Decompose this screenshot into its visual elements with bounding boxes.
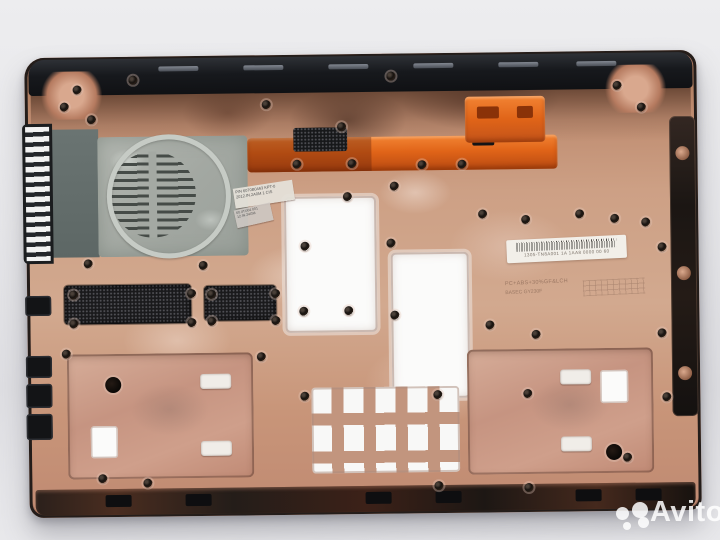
screw-hole <box>292 160 301 169</box>
screw-hole <box>613 81 622 90</box>
screw-hole <box>84 259 93 268</box>
heatsink-vent <box>22 124 54 264</box>
side-port-opening <box>26 384 52 408</box>
metal-clip <box>200 374 231 389</box>
screw-hole <box>271 316 280 325</box>
avito-logo-icon <box>616 507 629 520</box>
right-edge-channel <box>669 116 699 416</box>
screw-hole <box>300 392 309 401</box>
screw-hole <box>386 72 395 81</box>
product-photo: P/N 6070B0463 KPT-0 2012.IN.2A0M 1 CIS 6… <box>0 0 720 540</box>
screw-hole <box>199 261 208 270</box>
rear-slot <box>498 62 538 67</box>
screw-hole <box>523 389 532 398</box>
screw-hole <box>300 242 309 251</box>
screw-hole <box>658 328 667 337</box>
screw-hole <box>390 182 399 191</box>
side-port-opening <box>27 414 53 440</box>
screw-hole <box>143 479 152 488</box>
metal-clip <box>201 441 232 456</box>
screw-hole <box>347 159 356 168</box>
screw-hole <box>478 209 487 218</box>
avito-logo-icon <box>638 517 649 528</box>
screw-hole <box>271 289 280 298</box>
screw-boss <box>678 366 692 380</box>
screw-hole <box>299 307 308 316</box>
latch-block <box>366 492 392 504</box>
laptop-bottom-case: P/N 6070B0463 KPT-0 2012.IN.2A0M 1 CIS 6… <box>24 50 702 518</box>
screw-boss-hole <box>606 444 622 460</box>
screw-hole <box>524 483 533 492</box>
screw-hole <box>98 474 107 483</box>
screw-hole <box>417 160 426 169</box>
screw-hole <box>433 390 442 399</box>
avito-watermark: Avito <box>612 496 720 536</box>
screw-hole <box>128 76 137 85</box>
screw-hole <box>257 352 266 361</box>
screw-hole <box>207 290 216 299</box>
cutout-opening-center <box>391 252 471 399</box>
screw-hole <box>62 350 71 359</box>
screw-hole <box>69 319 78 328</box>
screw-boss <box>675 146 689 160</box>
hinge-mount-left <box>38 71 105 120</box>
rear-slot <box>158 66 198 71</box>
rear-slot <box>243 65 283 70</box>
fan-shroud <box>50 129 100 258</box>
latch-block <box>186 494 212 506</box>
screw-hole <box>386 239 395 248</box>
hinge-mount-right <box>602 64 669 113</box>
screw-hole <box>60 103 69 112</box>
screw-hole <box>623 453 632 462</box>
cutout-opening-left <box>284 196 378 333</box>
avito-logo-icon <box>632 502 648 518</box>
screw-hole <box>662 392 671 401</box>
metal-clip <box>561 436 592 451</box>
latch-block <box>436 491 462 503</box>
screw-hole <box>69 290 78 299</box>
screw-boss-hole <box>105 377 121 393</box>
watermark-text: Avito <box>650 496 720 529</box>
screw-hole <box>73 85 82 94</box>
screw-hole <box>658 242 667 251</box>
screw-hole <box>575 209 584 218</box>
screw-hole <box>337 122 346 131</box>
screw-hole <box>457 160 466 169</box>
bay-cutout <box>600 370 628 403</box>
screw-boss <box>677 266 691 280</box>
bay-cutout <box>91 426 118 458</box>
molded-grid-marking <box>583 277 646 296</box>
screw-hole <box>637 103 646 112</box>
latch-block <box>106 495 132 507</box>
screw-hole <box>390 311 399 320</box>
side-port-opening <box>25 296 51 316</box>
screw-hole <box>187 318 196 327</box>
screw-hole <box>207 317 216 326</box>
speaker-grille-left <box>64 284 191 325</box>
orange-bracket <box>465 96 546 143</box>
rear-slot <box>328 64 368 69</box>
side-port-opening <box>26 356 52 378</box>
screw-hole <box>262 100 271 109</box>
hdd-bay <box>67 352 255 479</box>
screw-hole <box>610 214 619 223</box>
screw-hole <box>344 306 353 315</box>
rear-slot <box>413 63 453 68</box>
screw-hole <box>641 217 650 226</box>
screw-hole <box>521 215 530 224</box>
screw-hole <box>87 115 96 124</box>
screw-hole <box>532 330 541 339</box>
latch-block <box>576 489 602 501</box>
screw-hole <box>434 481 443 490</box>
avito-logo-icon <box>623 522 631 530</box>
metal-clip <box>560 369 591 384</box>
screw-hole <box>343 192 352 201</box>
screw-hole <box>187 289 196 298</box>
screw-hole <box>485 320 494 329</box>
